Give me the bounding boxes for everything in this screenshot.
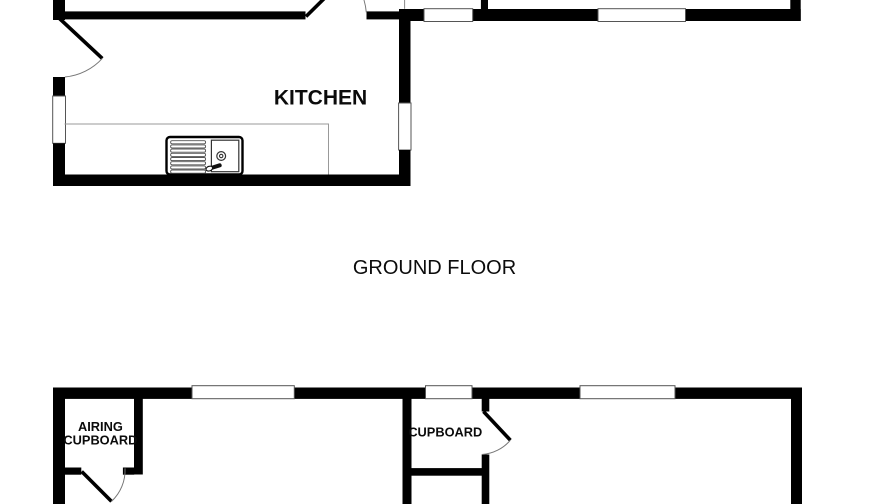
svg-text:CUPBOARD: CUPBOARD xyxy=(63,433,137,448)
svg-text:CUPBOARD: CUPBOARD xyxy=(408,425,482,440)
svg-text:GROUND FLOOR: GROUND FLOOR xyxy=(353,257,516,279)
svg-text:KITCHEN: KITCHEN xyxy=(274,87,367,110)
